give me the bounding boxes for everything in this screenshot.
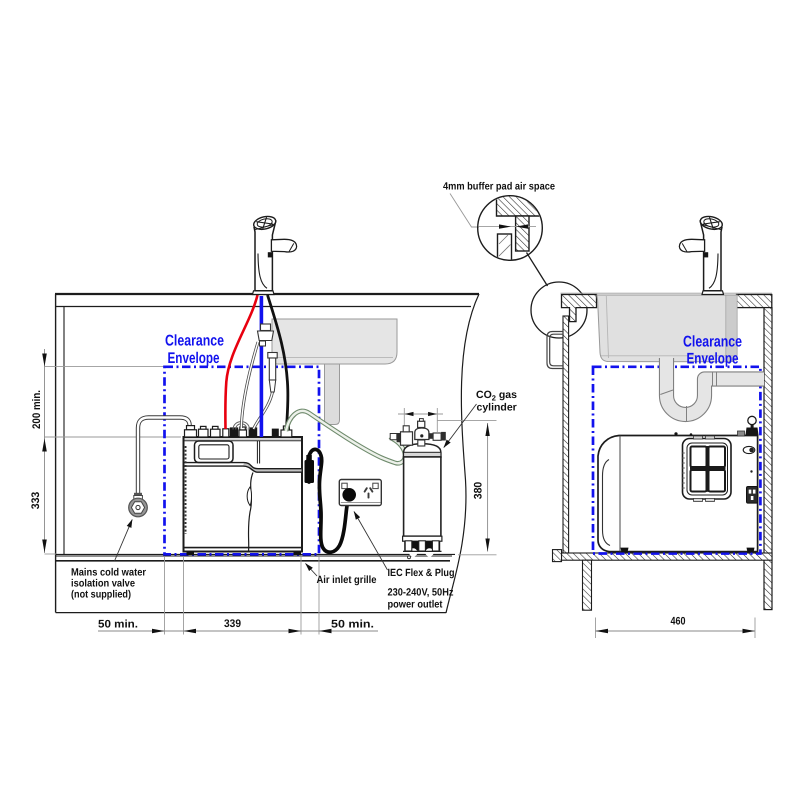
svg-text:230-240V, 50Hz: 230-240V, 50Hz bbox=[388, 587, 454, 599]
svg-text:380: 380 bbox=[473, 482, 485, 500]
svg-text:200 min.: 200 min. bbox=[31, 390, 43, 429]
svg-text:460: 460 bbox=[671, 616, 686, 628]
svg-text:339: 339 bbox=[224, 618, 241, 630]
svg-text:50 min.: 50 min. bbox=[98, 619, 138, 631]
svg-text:50 min.: 50 min. bbox=[331, 619, 374, 631]
svg-text:4mm buffer pad air space: 4mm buffer pad air space bbox=[443, 181, 555, 193]
svg-text:power outlet: power outlet bbox=[388, 599, 443, 611]
svg-text:333: 333 bbox=[30, 492, 42, 510]
svg-text:Clearance: Clearance bbox=[683, 334, 742, 351]
svg-text:CO2 gas: CO2 gas bbox=[476, 389, 517, 403]
svg-text:IEC Flex & Plug: IEC Flex & Plug bbox=[388, 567, 455, 579]
svg-text:Envelope: Envelope bbox=[687, 351, 739, 368]
svg-text:cylinder: cylinder bbox=[477, 402, 517, 414]
svg-text:Clearance: Clearance bbox=[165, 333, 224, 350]
svg-text:Air inlet grille: Air inlet grille bbox=[317, 574, 377, 586]
svg-text:(not supplied): (not supplied) bbox=[71, 589, 131, 601]
svg-text:Envelope: Envelope bbox=[168, 350, 220, 367]
